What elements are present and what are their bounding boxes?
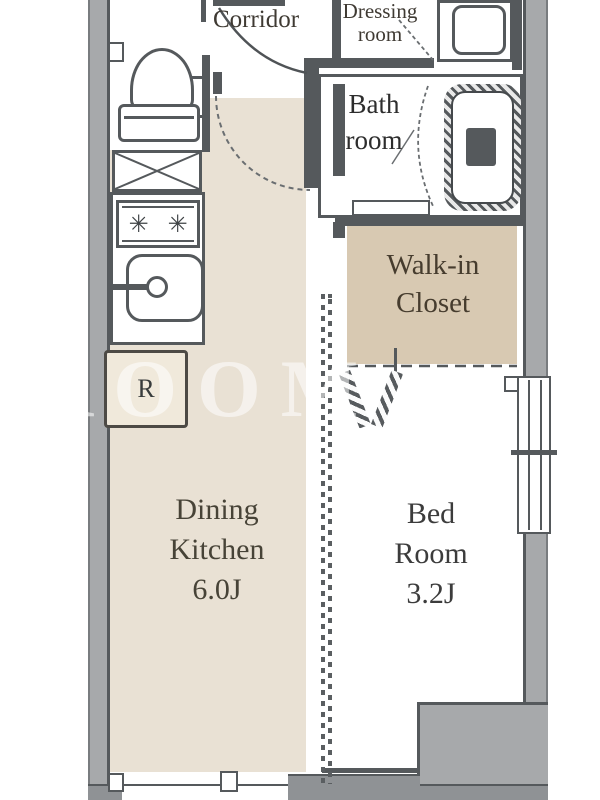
wall-dressing-bottom bbox=[318, 58, 434, 68]
window-post-icon bbox=[108, 773, 124, 792]
sliding-door-track-icon bbox=[328, 294, 332, 784]
dressing-room-label: Dressing room bbox=[326, 0, 434, 46]
window-end-cap bbox=[504, 376, 519, 392]
door-hinge-icon bbox=[213, 72, 222, 94]
wall-bathroom-outer bbox=[304, 58, 319, 188]
outer-wall-right-upper bbox=[523, 0, 548, 378]
bedroom-window bbox=[517, 376, 551, 534]
burner-icon: ✳ bbox=[167, 212, 187, 236]
folding-door-icon bbox=[339, 370, 371, 428]
wall-closet-notch bbox=[333, 222, 345, 238]
sliding-door-track-icon bbox=[321, 294, 325, 784]
window-post-icon bbox=[220, 771, 238, 792]
toilet-tank-icon bbox=[118, 104, 200, 142]
window-mullion bbox=[511, 450, 557, 455]
walk-in-closet-label: Walk-in Closet bbox=[352, 246, 514, 322]
bath-faucet-icon bbox=[466, 128, 496, 166]
wall-closet-top bbox=[335, 216, 523, 226]
window-frame-line bbox=[540, 380, 542, 530]
toilet-tank-line bbox=[124, 116, 194, 119]
stove-icon: ✳ ✳ bbox=[116, 200, 200, 248]
refrigerator-label: R bbox=[137, 374, 154, 404]
bathroom-label: Bath room bbox=[320, 86, 428, 158]
refrigerator-icon: R bbox=[104, 350, 188, 428]
floor-plan: ✳ ✳ R Corridor Dressing room Bath room W… bbox=[0, 0, 600, 800]
bottom-window bbox=[122, 786, 288, 800]
wall-bedroom-bottom bbox=[322, 768, 418, 773]
folding-door-icon bbox=[371, 370, 403, 428]
faucet-icon bbox=[146, 276, 168, 298]
burner-icon: ✳ bbox=[128, 212, 148, 236]
bedroom-label: Bed Room 3.2J bbox=[352, 494, 510, 614]
wall-washer-right bbox=[512, 0, 522, 70]
window-frame-line bbox=[528, 380, 530, 530]
wall-duct-notch bbox=[108, 42, 124, 62]
corridor-label: Corridor bbox=[196, 6, 316, 34]
washer-pan-inner bbox=[452, 5, 506, 55]
outer-wall-bottom-step bbox=[288, 774, 420, 786]
dining-kitchen-label: Dining Kitchen 6.0J bbox=[138, 490, 296, 610]
bath-threshold bbox=[352, 200, 430, 216]
storage-xbox-icon bbox=[112, 150, 202, 192]
